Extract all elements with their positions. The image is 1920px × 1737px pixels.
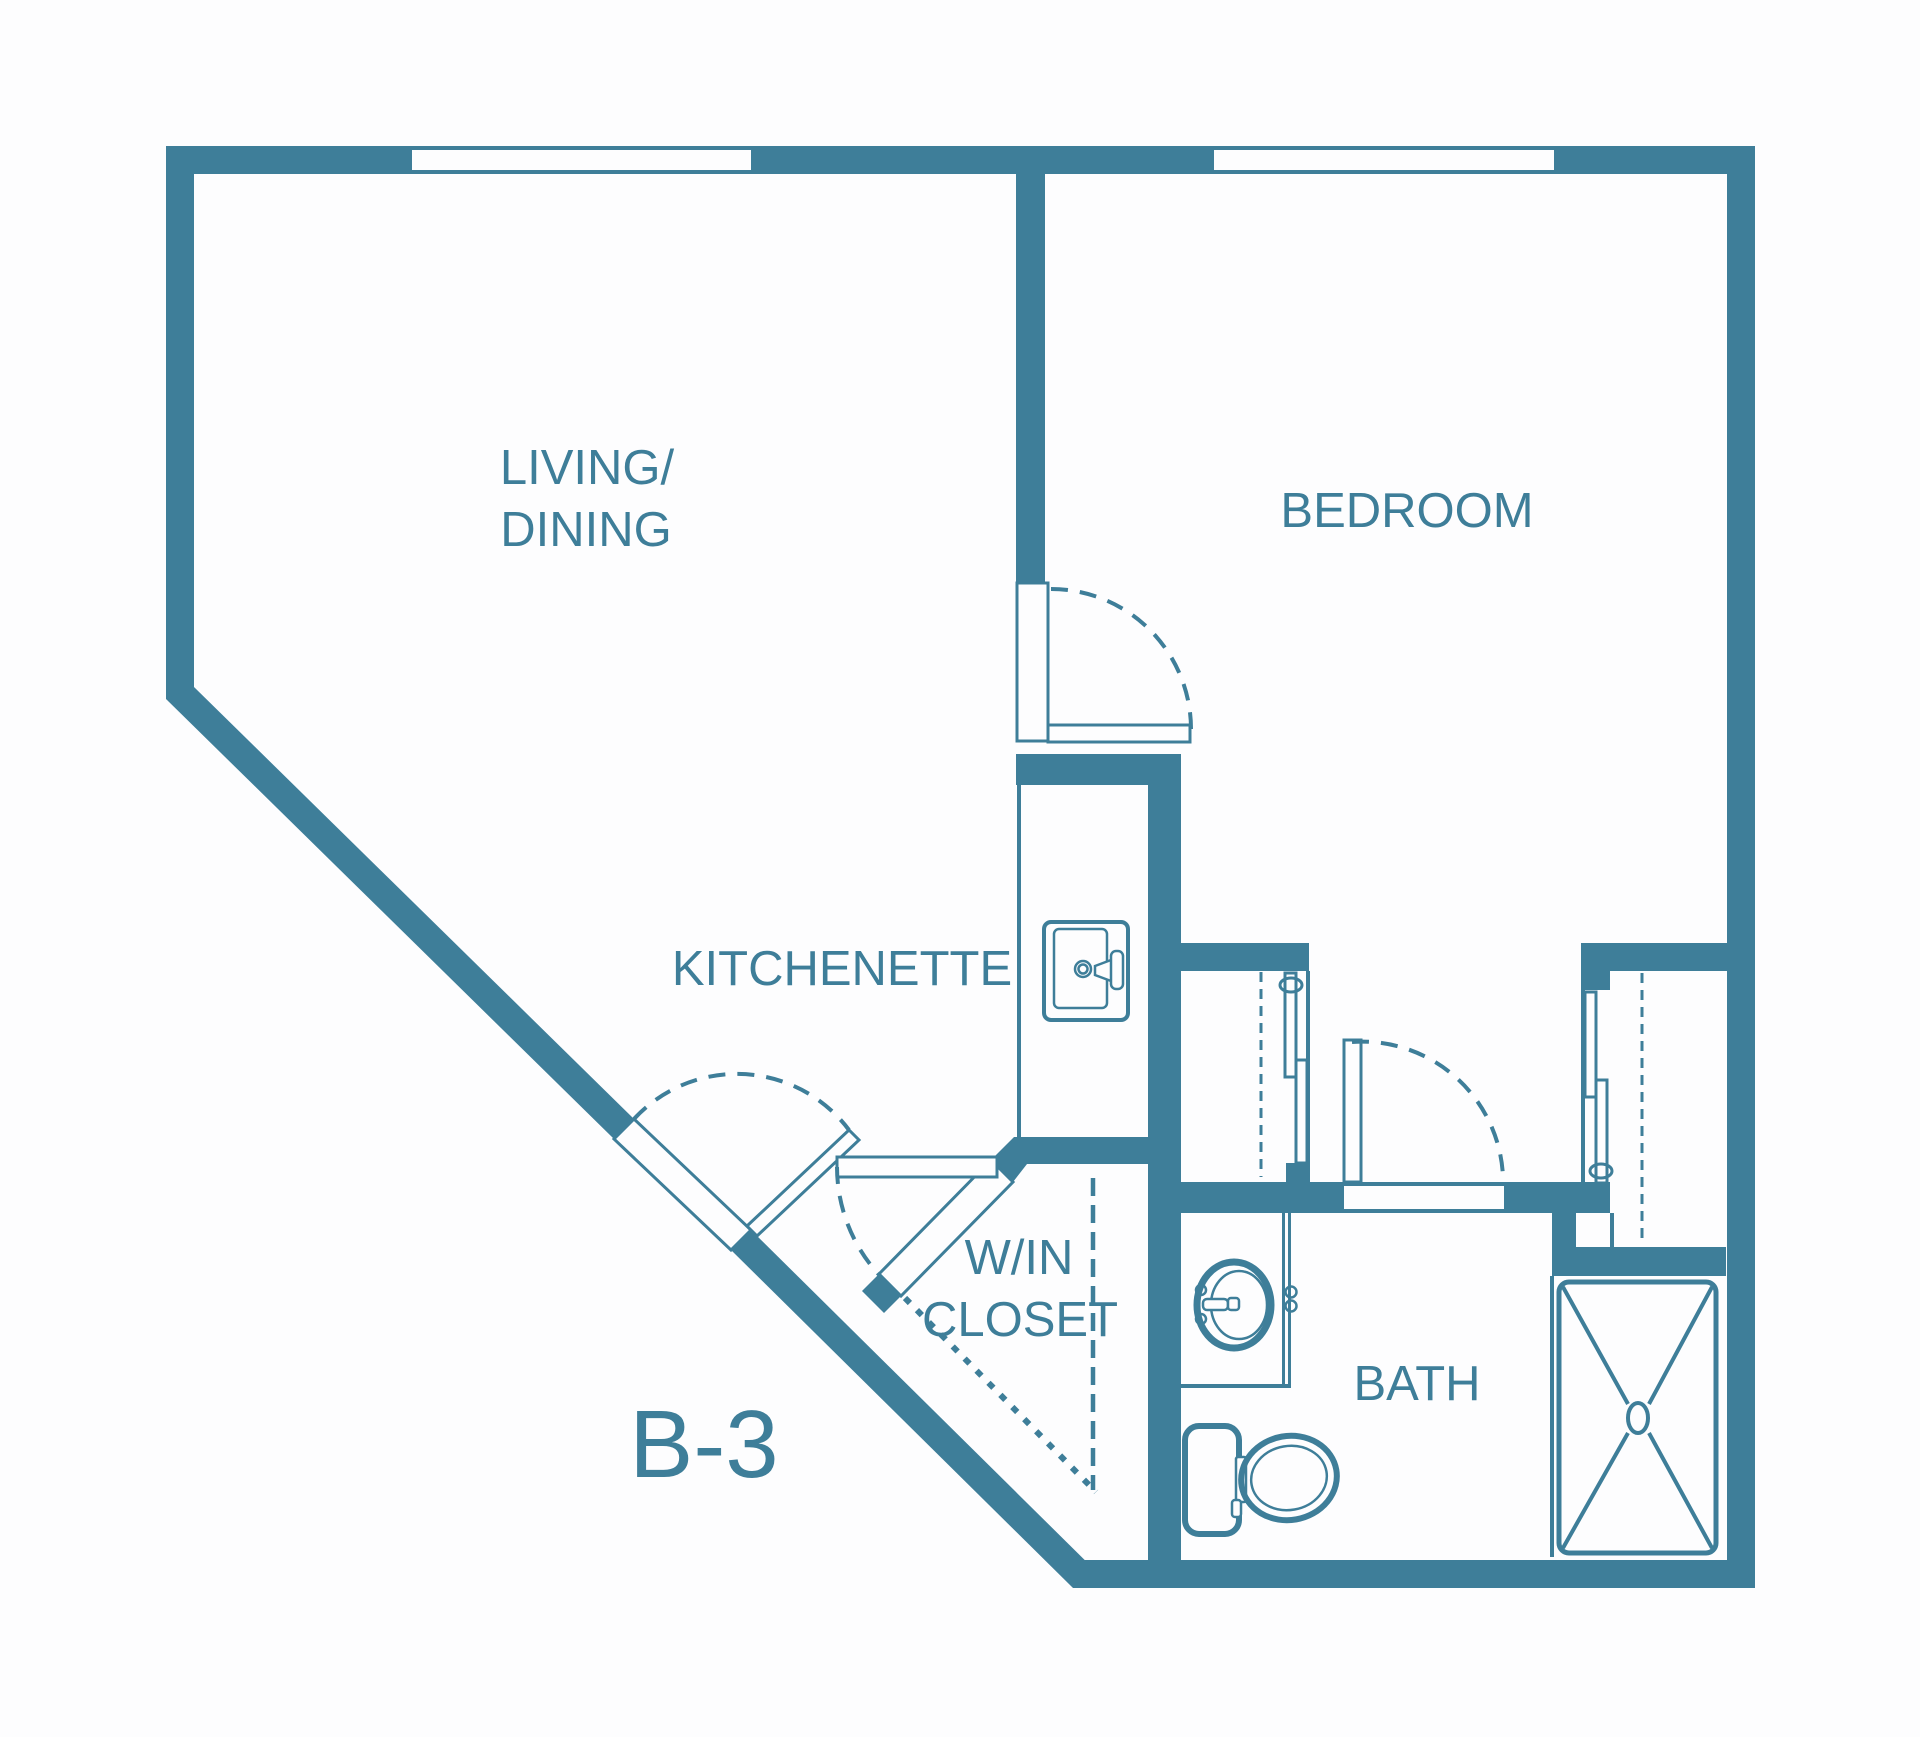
svg-text:LIVING/: LIVING/ bbox=[500, 441, 675, 495]
svg-text:B-3: B-3 bbox=[629, 1391, 778, 1498]
svg-text:CLOSET: CLOSET bbox=[922, 1293, 1118, 1347]
svg-text:KITCHENETTE: KITCHENETTE bbox=[672, 942, 1012, 996]
svg-text:DINING: DINING bbox=[500, 503, 672, 557]
svg-text:BEDROOM: BEDROOM bbox=[1280, 484, 1533, 538]
svg-text:BATH: BATH bbox=[1353, 1357, 1480, 1411]
svg-text:W/IN: W/IN bbox=[965, 1231, 1074, 1285]
